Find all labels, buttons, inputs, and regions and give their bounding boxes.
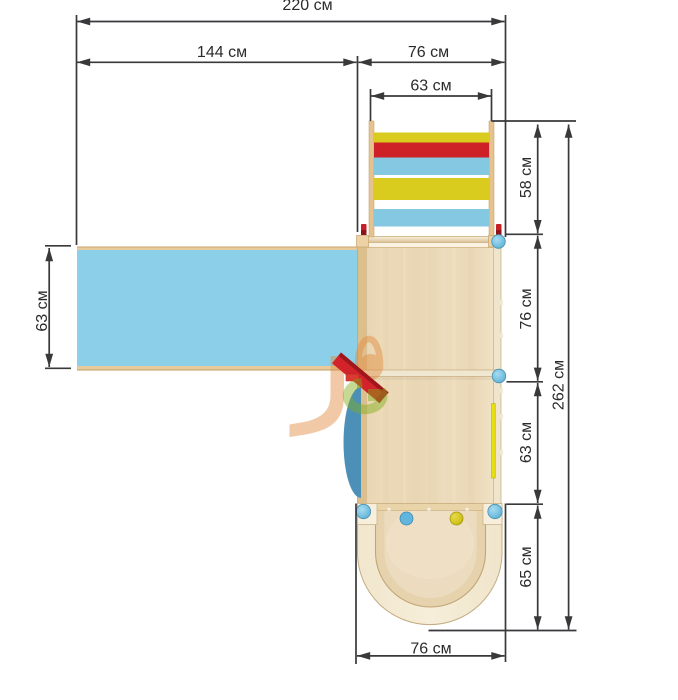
svg-text:76 см: 76 см <box>518 288 535 329</box>
svg-text:63 см: 63 см <box>410 78 451 95</box>
svg-text:220 см: 220 см <box>282 0 332 14</box>
svg-text:65 см: 65 см <box>518 546 535 587</box>
svg-text:58 см: 58 см <box>518 157 535 198</box>
svg-text:76 см: 76 см <box>410 641 451 658</box>
svg-text:76 см: 76 см <box>408 44 449 61</box>
svg-text:63 см: 63 см <box>34 290 51 331</box>
svg-text:144 см: 144 см <box>197 44 247 61</box>
svg-text:262 см: 262 см <box>551 360 568 410</box>
svg-text:63 см: 63 см <box>518 422 535 463</box>
